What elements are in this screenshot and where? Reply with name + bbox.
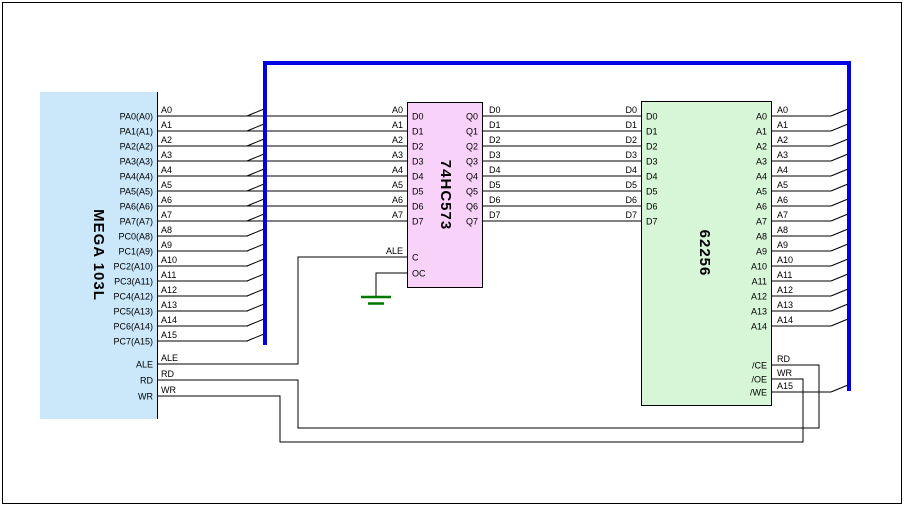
- bus-entry-A8-left: [247, 229, 264, 236]
- bus-entry-A2-right: [831, 139, 848, 146]
- bus-entry-a15-right: [831, 385, 848, 392]
- bus-entry-A15-left: [247, 334, 264, 341]
- mcu-pin-PC5(A13): PC5(A13): [113, 307, 153, 317]
- net-label-D4-latchside: D4: [489, 165, 501, 175]
- bus-entry-A3-right: [831, 154, 848, 161]
- net-label-A9-sram: A9: [777, 240, 788, 250]
- net-label-D5-latchside: D5: [489, 180, 501, 190]
- sram-pin-D1: D1: [646, 127, 658, 137]
- latch-pin-Q5: Q5: [466, 187, 478, 197]
- bus-entry-A6-left: [247, 199, 264, 206]
- net-label-A12-sram: A12: [777, 285, 793, 295]
- sram-pin-nCE: /CE: [752, 361, 767, 371]
- latch-pin-D0: D0: [412, 112, 424, 122]
- net-label-A12-mcu: A12: [161, 285, 177, 295]
- bus-entry-A7-right: [831, 214, 848, 221]
- net-label-A5-sram: A5: [777, 180, 788, 190]
- latch-pin-c: C: [412, 253, 419, 263]
- mcu-pin-PA0(A0): PA0(A0): [120, 112, 153, 122]
- net-label-A2-mcu: A2: [161, 135, 172, 145]
- net-label-rd-sram: RD: [777, 354, 790, 364]
- sram-pin-nWE: /WE: [750, 388, 767, 398]
- bus-entry-A10-right: [831, 259, 848, 266]
- net-label-A0-sram: A0: [777, 105, 788, 115]
- mcu-pin-PC4(A12): PC4(A12): [113, 292, 153, 302]
- sram-pin-A12: A12: [751, 292, 767, 302]
- latch-pin-D3: D3: [412, 157, 424, 167]
- sram-pin-A11: A11: [752, 277, 767, 287]
- net-label-wr-sram: WR: [777, 368, 792, 378]
- sram-pin-D4: D4: [646, 172, 658, 182]
- net-label-A6-mcu: A6: [161, 195, 172, 205]
- net-label-A1-latch: A1: [392, 120, 403, 130]
- net-label-D7-latchside: D7: [489, 210, 501, 220]
- mcu-pin-PC6(A14): PC6(A14): [113, 322, 153, 332]
- bus-entry-A8-right: [831, 229, 848, 236]
- bus-entry-A1-left: [247, 124, 264, 131]
- net-label-D2-latchside: D2: [489, 135, 501, 145]
- mcu-pin-PA5(A5): PA5(A5): [120, 187, 153, 197]
- sram-pin-A6: A6: [756, 202, 767, 212]
- mcu-pin-RD: RD: [140, 376, 153, 386]
- bus-entry-A12-left: [247, 289, 264, 296]
- sram-pin-A5: A5: [756, 187, 767, 197]
- bus-entry-A13-left: [247, 304, 264, 311]
- latch-pin-Q2: Q2: [466, 142, 478, 152]
- mcu-pin-PA3(A3): PA3(A3): [120, 157, 153, 167]
- net-label-A0-mcu: A0: [161, 105, 172, 115]
- net-label-D6-sramside: D6: [625, 195, 637, 205]
- net-label-D3-sramside: D3: [625, 150, 637, 160]
- latch-pin-D2: D2: [412, 142, 424, 152]
- sram-pin-A10: A10: [751, 262, 767, 272]
- bus-entry-A5-left: [247, 184, 264, 191]
- net-label-A6-sram: A6: [777, 195, 788, 205]
- latch-pin-Q1: Q1: [466, 127, 478, 137]
- mcu-pin-WR: WR: [138, 392, 153, 402]
- net-label-A3-latch: A3: [392, 150, 403, 160]
- latch-pin-Q3: Q3: [466, 157, 478, 167]
- mcu-pin-PA2(A2): PA2(A2): [120, 142, 153, 152]
- net-label-A9-mcu: A9: [161, 240, 172, 250]
- net-label-D1-sramside: D1: [625, 120, 637, 130]
- net-label-A3-sram: A3: [777, 150, 788, 160]
- net-label-A7-latch: A7: [392, 210, 403, 220]
- net-label-ale-mcu: ALE: [161, 353, 178, 363]
- sram-pin-A14: A14: [751, 322, 767, 332]
- mcu-pin-PC1(A9): PC1(A9): [118, 247, 153, 257]
- sram-pin-A1: A1: [756, 127, 767, 137]
- bus-entry-A9-left: [247, 244, 264, 251]
- mcu-pin-PC0(A8): PC0(A8): [118, 232, 153, 242]
- net-label-A13-sram: A13: [777, 300, 793, 310]
- sram-pin-A2: A2: [756, 142, 767, 152]
- sram-pin-A7: A7: [756, 217, 767, 227]
- sram-pin-D5: D5: [646, 187, 658, 197]
- mcu-chip-name: MEGA 103L: [90, 209, 107, 301]
- net-label-rd-mcu: RD: [161, 369, 174, 379]
- latch-pin-D5: D5: [412, 187, 424, 197]
- net-label-A11-sram: A11: [777, 270, 792, 280]
- net-label-D0-sramside: D0: [625, 105, 637, 115]
- wire-oc-to-ground: [376, 273, 407, 296]
- mcu-pin-PA1(A1): PA1(A1): [120, 127, 153, 137]
- latch-pin-D4: D4: [412, 172, 424, 182]
- bus-entry-A10-left: [247, 259, 264, 266]
- net-label-A10-mcu: A10: [161, 255, 177, 265]
- bus-entry-A12-right: [831, 289, 848, 296]
- sram-pin-A13: A13: [751, 307, 767, 317]
- net-label-D5-sramside: D5: [625, 180, 637, 190]
- net-label-D3-latchside: D3: [489, 150, 501, 160]
- net-label-A2-latch: A2: [392, 135, 403, 145]
- net-label-A4-latch: A4: [392, 165, 403, 175]
- bus-entry-A11-right: [831, 274, 848, 281]
- latch-pin-D1: D1: [412, 127, 424, 137]
- net-label-A0-latch: A0: [392, 105, 403, 115]
- net-label-A14-mcu: A14: [161, 315, 177, 325]
- bus-entry-A4-left: [247, 169, 264, 176]
- mcu-pin-PC3(A11): PC3(A11): [114, 277, 153, 287]
- latch-pin-oc: OC: [412, 269, 426, 279]
- latch-pin-D6: D6: [412, 202, 424, 212]
- net-label-A15-mcu: A15: [161, 330, 177, 340]
- bus-entry-A5-right: [831, 184, 848, 191]
- net-label-A14-sram: A14: [777, 315, 793, 325]
- net-label-D2-sramside: D2: [625, 135, 637, 145]
- sram-pin-A4: A4: [756, 172, 767, 182]
- net-label-A6-latch: A6: [392, 195, 403, 205]
- schematic-canvas: MEGA 103L 74HC573 62256 A0A0A1A1A2A2A3A3…: [0, 0, 905, 507]
- net-label-ale-latch: ALE: [386, 246, 403, 256]
- net-label-A8-sram: A8: [777, 225, 788, 235]
- sram-pin-D3: D3: [646, 157, 658, 167]
- net-label-D4-sramside: D4: [625, 165, 637, 175]
- sram-pin-A9: A9: [756, 247, 767, 257]
- net-label-A10-sram: A10: [777, 255, 793, 265]
- bus-entry-A4-right: [831, 169, 848, 176]
- latch-pin-D7: D7: [412, 217, 424, 227]
- net-label-A8-mcu: A8: [161, 225, 172, 235]
- net-label-wr-mcu: WR: [161, 385, 176, 395]
- latch-pin-Q0: Q0: [466, 112, 478, 122]
- bus-entry-A6-right: [831, 199, 848, 206]
- net-label-A7-sram: A7: [777, 210, 788, 220]
- net-label-D0-latchside: D0: [489, 105, 501, 115]
- net-label-A13-mcu: A13: [161, 300, 177, 310]
- mcu-pin-PA6(A6): PA6(A6): [120, 202, 153, 212]
- latch-pin-Q6: Q6: [466, 202, 478, 212]
- net-label-D6-latchside: D6: [489, 195, 501, 205]
- sram-pin-A3: A3: [756, 157, 767, 167]
- latch-pin-Q7: Q7: [466, 217, 478, 227]
- bus-entry-A3-left: [247, 154, 264, 161]
- net-label-A7-mcu: A7: [161, 210, 172, 220]
- sram-pin-nOE: /OE: [751, 375, 767, 385]
- sram-pin-D2: D2: [646, 142, 658, 152]
- sram-pin-A8: A8: [756, 232, 767, 242]
- bus-entry-A14-left: [247, 319, 264, 326]
- bus-entry-A9-right: [831, 244, 848, 251]
- bus-entry-A7-left: [247, 214, 264, 221]
- sram-pin-D7: D7: [646, 217, 658, 227]
- net-label-A5-latch: A5: [392, 180, 403, 190]
- latch-chip-name: 74HC573: [437, 160, 454, 230]
- mcu-pin-PA7(A7): PA7(A7): [120, 217, 153, 227]
- net-label-A5-mcu: A5: [161, 180, 172, 190]
- bus-entry-A1-right: [831, 124, 848, 131]
- bus-entry-A14-right: [831, 319, 848, 326]
- net-label-D1-latchside: D1: [489, 120, 501, 130]
- bus-entry-A2-left: [247, 139, 264, 146]
- sram-pin-D6: D6: [646, 202, 658, 212]
- net-label-A4-mcu: A4: [161, 165, 172, 175]
- sram-chip-name: 62256: [696, 230, 713, 277]
- bus-entry-A0-left: [247, 109, 264, 116]
- net-label-A3-mcu: A3: [161, 150, 172, 160]
- mcu-pin-PC2(A10): PC2(A10): [113, 262, 153, 272]
- net-label-A1-mcu: A1: [161, 120, 172, 130]
- net-label-A4-sram: A4: [777, 165, 788, 175]
- mcu-pin-PC7(A15): PC7(A15): [113, 337, 153, 347]
- net-label-A2-sram: A2: [777, 135, 788, 145]
- net-label-A1-sram: A1: [777, 120, 788, 130]
- sram-pin-A0: A0: [756, 112, 767, 122]
- latch-pin-Q4: Q4: [466, 172, 478, 182]
- mcu-pin-PA4(A4): PA4(A4): [120, 172, 153, 182]
- sram-pin-D0: D0: [646, 112, 658, 122]
- bus-entry-A11-left: [247, 274, 264, 281]
- net-label-D7-sramside: D7: [625, 210, 637, 220]
- net-label-A11-mcu: A11: [161, 270, 176, 280]
- bus-entry-A0-right: [831, 109, 848, 116]
- mcu-pin-ALE: ALE: [136, 360, 153, 370]
- net-label-a15-sram: A15: [777, 381, 793, 391]
- bus-entry-A13-right: [831, 304, 848, 311]
